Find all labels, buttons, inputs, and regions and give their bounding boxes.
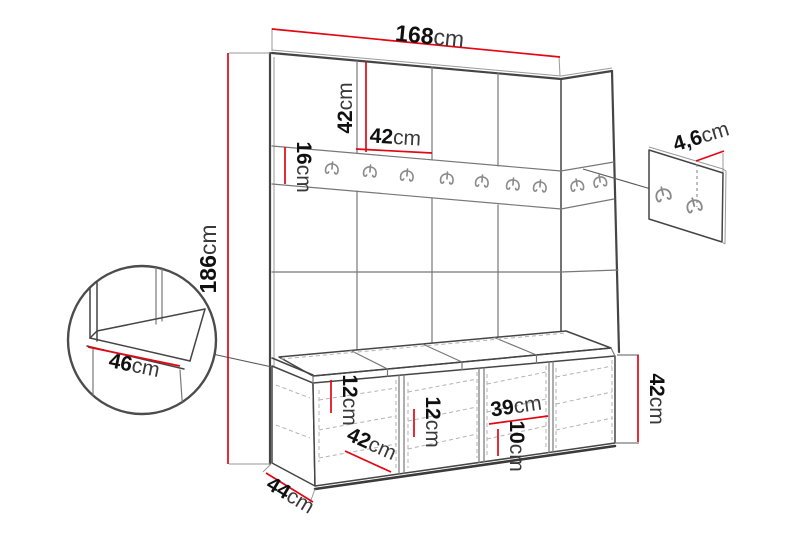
coat-hook-icon	[506, 177, 519, 190]
dim-label-rail-height: 16cm	[292, 141, 315, 192]
dim-label-hook-panel-offset: 4,6cm	[670, 117, 731, 156]
hook-panel-detail	[583, 147, 726, 244]
dim-line-panel-width	[356, 149, 432, 153]
coat-hook-icon	[325, 161, 338, 174]
dim-label-bench-height: 42cm	[645, 373, 668, 424]
dim-label-total-height: 186cm	[195, 224, 221, 293]
coat-hook-icon	[400, 168, 413, 181]
coat-hook-icon	[593, 174, 607, 187]
coat-hook-icon	[440, 171, 453, 184]
wall-right-edge	[612, 71, 619, 352]
detail-callout-line	[208, 353, 272, 367]
panel-row-line	[272, 270, 618, 272]
dim-label-panel-width: 42cm	[369, 124, 422, 150]
hook-rail-bottom	[272, 184, 614, 209]
dimension-diagram-page: 168cm 186cm 42cm 42cm 16cm 46cm 12cm 42c…	[0, 0, 800, 533]
furniture-dimension-diagram: 168cm 186cm 42cm 42cm 16cm 46cm 12cm 42c…	[0, 0, 800, 533]
dim-label-total-width: 168cm	[394, 20, 465, 53]
wall-top-edge	[272, 53, 612, 79]
hook-panel-front	[649, 150, 723, 242]
coat-hook-icon	[533, 179, 546, 192]
coat-hook-icon	[475, 174, 488, 187]
coat-hook-row	[325, 161, 607, 192]
dim-label-panel-height: 42cm	[334, 82, 357, 133]
coat-hook-icon	[570, 178, 584, 191]
dim-label-mid-shelf: 12cm	[421, 396, 444, 447]
coat-hook-icon	[363, 164, 376, 177]
hook-rail-top	[272, 146, 614, 171]
dim-line-hook-panel-offset	[696, 151, 724, 161]
dim-label-right-shelf: 10cm	[505, 420, 528, 471]
seat-detail-circle	[68, 262, 272, 414]
dim-label-left-shelf: 12cm	[338, 374, 361, 425]
